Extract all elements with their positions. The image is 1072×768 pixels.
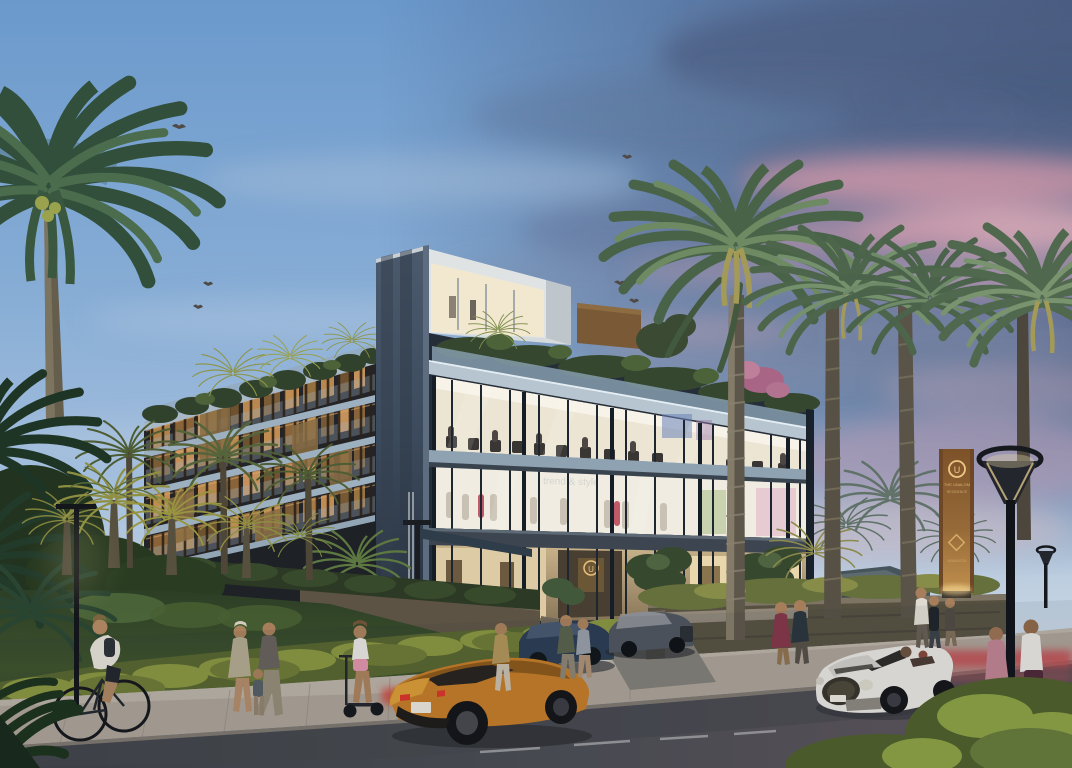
svg-text:NAMASTA: NAMASTA (947, 558, 966, 563)
svg-text:THE UNALOM: THE UNALOM (944, 482, 970, 487)
svg-text:RESIDENCE: RESIDENCE (947, 490, 968, 494)
svg-text:trend & style: trend & style (543, 476, 599, 488)
svg-text:U: U (588, 565, 594, 574)
svg-text:U: U (954, 465, 961, 475)
